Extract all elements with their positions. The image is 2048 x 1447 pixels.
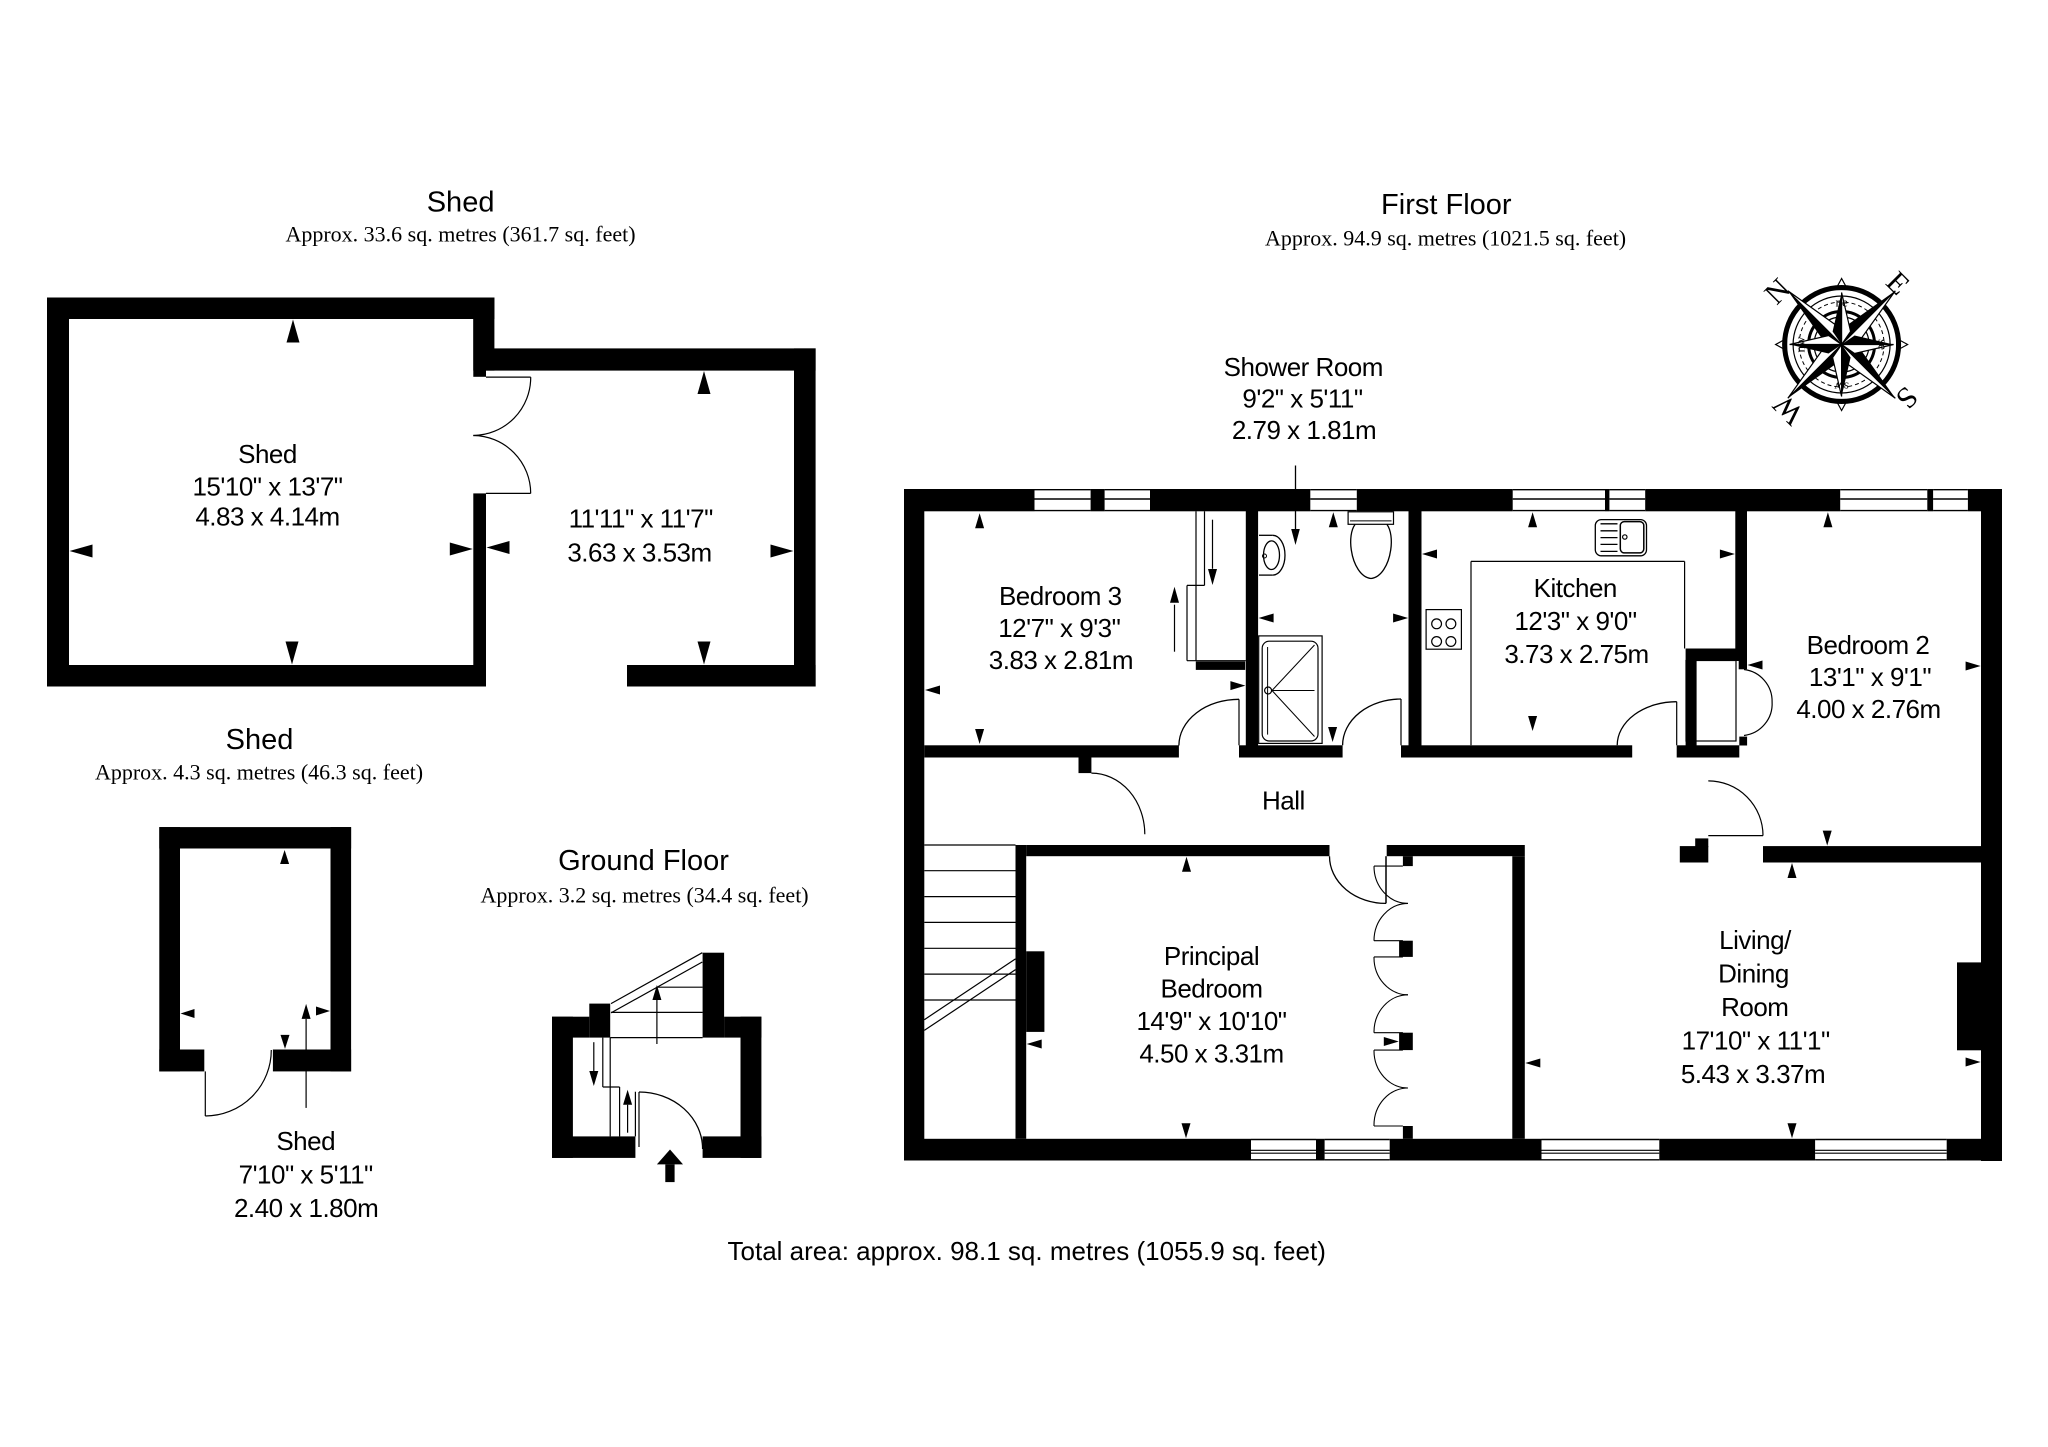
- svg-text:12'7" x 9'3": 12'7" x 9'3": [998, 613, 1120, 643]
- svg-text:3.73 x 2.75m: 3.73 x 2.75m: [1504, 639, 1648, 669]
- svg-text:Dining: Dining: [1718, 959, 1789, 989]
- svg-text:11'11" x 11'7": 11'11" x 11'7": [569, 503, 714, 533]
- svg-text:Ground Floor: Ground Floor: [558, 845, 729, 877]
- svg-text:4.50 x 3.31m: 4.50 x 3.31m: [1139, 1039, 1283, 1069]
- svg-text:Shed: Shed: [276, 1126, 335, 1156]
- svg-text:sw: sw: [1834, 380, 1849, 395]
- svg-text:3.83 x 2.81m: 3.83 x 2.81m: [989, 645, 1133, 675]
- svg-text:2.79 x 1.81m: 2.79 x 1.81m: [1232, 415, 1376, 445]
- svg-text:12'3" x 9'0": 12'3" x 9'0": [1514, 606, 1636, 636]
- svg-text:Hall: Hall: [1262, 786, 1305, 816]
- svg-text:5.43 x 3.37m: 5.43 x 3.37m: [1681, 1059, 1825, 1089]
- svg-text:4.00 x 2.76m: 4.00 x 2.76m: [1796, 694, 1940, 724]
- svg-text:Approx. 4.3 sq. metres (46.3 s: Approx. 4.3 sq. metres (46.3 sq. feet): [95, 760, 423, 785]
- svg-text:Bedroom: Bedroom: [1161, 974, 1263, 1004]
- svg-text:Bedroom 2: Bedroom 2: [1807, 630, 1930, 660]
- svg-text:Principal: Principal: [1164, 941, 1259, 971]
- svg-text:17'10" x 11'1": 17'10" x 11'1": [1682, 1025, 1830, 1055]
- svg-text:Kitchen: Kitchen: [1534, 573, 1617, 603]
- svg-text:9'2" x 5'11": 9'2" x 5'11": [1242, 384, 1362, 414]
- svg-text:se: se: [1876, 339, 1891, 350]
- svg-text:Bedroom 3: Bedroom 3: [999, 581, 1122, 611]
- svg-text:4.83 x 4.14m: 4.83 x 4.14m: [195, 502, 339, 532]
- svg-text:Shed: Shed: [238, 439, 297, 469]
- svg-text:Room: Room: [1721, 992, 1788, 1022]
- svg-text:13'1" x 9'1": 13'1" x 9'1": [1809, 662, 1931, 692]
- svg-text:Living/: Living/: [1719, 925, 1792, 955]
- svg-text:15'10" x 13'7": 15'10" x 13'7": [192, 472, 342, 502]
- svg-text:Shed: Shed: [427, 187, 495, 219]
- svg-text:2.40 x 1.80m: 2.40 x 1.80m: [234, 1193, 378, 1223]
- svg-text:14'9" x 10'10": 14'9" x 10'10": [1136, 1006, 1286, 1036]
- svg-text:ne: ne: [1835, 295, 1848, 310]
- svg-text:Approx. 33.6 sq. metres (361.7: Approx. 33.6 sq. metres (361.7 sq. feet): [285, 222, 635, 247]
- svg-text:Shower Room: Shower Room: [1224, 352, 1383, 382]
- svg-text:3.63 x 3.53m: 3.63 x 3.53m: [567, 538, 711, 568]
- svg-text:Shed: Shed: [226, 724, 294, 756]
- svg-text:First Floor: First Floor: [1381, 189, 1512, 221]
- svg-text:Total area: approx. 98.1 sq. m: Total area: approx. 98.1 sq. metres (105…: [728, 1236, 1326, 1266]
- svg-text:nw: nw: [1793, 336, 1808, 353]
- svg-text:Approx. 94.9 sq. metres (1021.: Approx. 94.9 sq. metres (1021.5 sq. feet…: [1265, 226, 1626, 251]
- svg-text:Approx. 3.2 sq. metres (34.4 s: Approx. 3.2 sq. metres (34.4 sq. feet): [481, 883, 809, 908]
- svg-text:7'10" x 5'11": 7'10" x 5'11": [239, 1159, 373, 1189]
